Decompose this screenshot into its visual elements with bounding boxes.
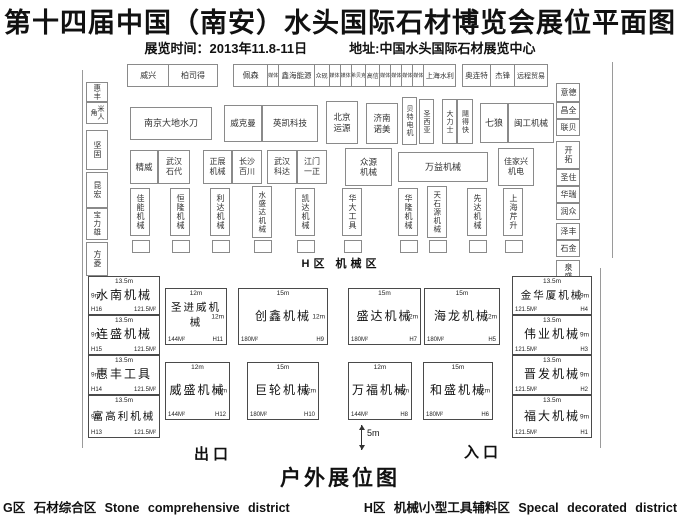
booth-area: 121.5M² bbox=[515, 347, 537, 353]
hall-zone-label: H区 机械区 bbox=[128, 255, 554, 271]
booth-top-dimension: 13.5m bbox=[513, 397, 591, 404]
empty-booth bbox=[297, 240, 315, 253]
booth: 圣西亚 bbox=[419, 99, 434, 144]
booth: 13.5m9m连盛机械H15121.5M² bbox=[88, 315, 160, 355]
booth-area: 144M² bbox=[351, 412, 368, 418]
exit-label: 出口 bbox=[194, 443, 232, 464]
booth: 华大工具 bbox=[342, 188, 362, 236]
booth-name: 金华厦机械 bbox=[513, 287, 591, 302]
booth-code: H6 bbox=[481, 412, 489, 418]
booth-name: 和盛机械 bbox=[424, 381, 492, 398]
booth-code: H1 bbox=[580, 430, 588, 436]
booth-top-dimension: 15m bbox=[239, 290, 327, 297]
booth: 13.5m9m金华厦机械121.5M²H4 bbox=[512, 276, 592, 315]
booth-top-dimension: 13.5m bbox=[513, 357, 591, 364]
booth-code: H14 bbox=[91, 387, 102, 393]
top-row: 威兴柏司得佩森媒体鑫海能源众砚媒体媒体希贝克高信媒体媒体媒体媒体上海水利奥连特杰… bbox=[128, 64, 548, 87]
booth: 利达机械 bbox=[210, 188, 230, 236]
booth-code: H11 bbox=[212, 337, 223, 343]
floor-plan-page: 第十四届中国（南安）水头国际石材博览会展位平面图 展览时间：2013年11.8-… bbox=[0, 0, 680, 517]
booth: 威兴 bbox=[127, 64, 169, 87]
booth-code: H4 bbox=[580, 307, 588, 313]
legend-g-zone: G区 石材综合区 Stone comprehensive district bbox=[3, 497, 290, 516]
booth: 高信 bbox=[365, 64, 380, 87]
booth-top-dimension: 15m bbox=[424, 364, 492, 371]
booth-area: 121.5M² bbox=[134, 347, 156, 353]
aisle-width-label: 5m bbox=[367, 428, 380, 438]
booth-name: 晋发机械 bbox=[513, 365, 591, 382]
booth-name: 海龙机械 bbox=[425, 307, 499, 324]
booth-code: H5 bbox=[488, 337, 496, 343]
booth: 瑞华 bbox=[556, 186, 580, 203]
booth: 希贝克 bbox=[351, 64, 367, 87]
booth: 13.5m9m伟业机械121.5M²H3 bbox=[512, 315, 592, 355]
booth-area: 121.5M² bbox=[134, 307, 156, 313]
aisle-width-arrow bbox=[361, 425, 362, 450]
empty-booth bbox=[400, 240, 418, 253]
booth: 住圣 bbox=[556, 169, 580, 186]
booth: 12m12m万福机械144M²H8 bbox=[348, 362, 412, 420]
booth: 杰锋 bbox=[490, 64, 515, 87]
empty-booth bbox=[212, 240, 230, 253]
booth-code: H7 bbox=[409, 337, 417, 343]
booth-area: 180M² bbox=[426, 412, 443, 418]
legend: G区 石材综合区 Stone comprehensive district H区… bbox=[3, 497, 677, 516]
booth: 贝特电机 bbox=[402, 97, 417, 145]
booth: 15m12m和盛机械180M²H6 bbox=[423, 362, 493, 420]
booth-area: 180M² bbox=[351, 337, 368, 343]
booth: 昆宏 bbox=[86, 172, 108, 208]
booth-name: 伟业机械 bbox=[513, 325, 591, 342]
booth: 方菱 bbox=[86, 242, 108, 276]
booth-top-dimension: 12m bbox=[166, 364, 229, 371]
booth: 12m12m威盛机械144M²H12 bbox=[165, 362, 230, 420]
booth-top-dimension: 12m bbox=[349, 364, 411, 371]
booth-area: 121.5M² bbox=[515, 387, 537, 393]
booth-name: 万福机械 bbox=[349, 381, 411, 398]
booth-area: 121.5M² bbox=[515, 430, 537, 436]
booth-name: 富高利机械 bbox=[89, 408, 159, 423]
booth: 北京 运源 bbox=[326, 101, 358, 144]
empty-booth bbox=[172, 240, 190, 253]
booth: 开拓 bbox=[556, 141, 580, 169]
empty-booth bbox=[254, 240, 272, 253]
booth-top-dimension: 15m bbox=[248, 364, 318, 371]
booth: 大力士 bbox=[442, 99, 457, 144]
booth: 上海水利 bbox=[423, 64, 456, 87]
booth: 佳家兴 机电 bbox=[498, 148, 534, 186]
booth: 精威 bbox=[130, 150, 158, 184]
booth: 济南 诺美 bbox=[366, 103, 398, 144]
booth: 15m12m巨轮机械180M²H10 bbox=[247, 362, 319, 420]
booth-area: 144M² bbox=[168, 337, 185, 343]
booth-top-dimension: 13.5m bbox=[89, 317, 159, 324]
booth: 15m12m盛达机械180M²H7 bbox=[348, 288, 421, 345]
booth: 15m12m海龙机械180M²H5 bbox=[424, 288, 500, 345]
booth-code: H15 bbox=[91, 347, 102, 353]
booth: 七狼 bbox=[480, 103, 508, 143]
booth-area: 121.5M² bbox=[134, 387, 156, 393]
booth-top-dimension: 13.5m bbox=[513, 317, 591, 324]
booth: 柏司得 bbox=[168, 64, 218, 87]
booth: 惠丰 bbox=[86, 82, 108, 102]
booth: 江门 一正 bbox=[297, 150, 327, 184]
booth-area: 121.5M² bbox=[134, 430, 156, 436]
booth: 13.5m9m水南机械H16121.5M² bbox=[88, 276, 160, 315]
booth: 闽工机械 bbox=[508, 103, 554, 143]
booth: 13.5m9m惠丰工具H14121.5M² bbox=[88, 355, 160, 395]
booth: 威克曼 bbox=[224, 105, 262, 142]
booth: 12m12m圣进威机械144M²H11 bbox=[165, 288, 227, 345]
right-wall-line-upper bbox=[612, 62, 613, 258]
entrance-label: 入口 bbox=[464, 441, 502, 462]
booth: 天石源机械 bbox=[427, 186, 447, 238]
booth: 远程贸易 bbox=[514, 64, 548, 87]
booth: 13.5m9m福大机械121.5M²H1 bbox=[512, 395, 592, 438]
booth: 13.5m9m富高利机械H13121.5M² bbox=[88, 395, 160, 438]
booth: 众砚 bbox=[314, 64, 330, 87]
booth: 飓得快 bbox=[457, 99, 473, 144]
booth: 英凯科技 bbox=[262, 105, 318, 142]
booth-name: 威盛机械 bbox=[166, 381, 229, 398]
empty-booth bbox=[132, 240, 150, 253]
right-wall-line-lower bbox=[600, 268, 601, 448]
booth-name: 巨轮机械 bbox=[248, 381, 318, 398]
booth-code: H12 bbox=[215, 412, 226, 418]
booth: 水盛达机械 bbox=[252, 186, 272, 238]
booth: 华隆机械 bbox=[398, 188, 418, 236]
booth: 正展 机械 bbox=[203, 150, 232, 184]
booth: 坚固 bbox=[86, 130, 108, 170]
booth-top-dimension: 13.5m bbox=[513, 278, 591, 285]
outdoor-plan-title: 户外展位图 bbox=[0, 462, 680, 492]
booth: 丰泽 bbox=[556, 223, 580, 240]
booth: 宝力雄 bbox=[86, 208, 108, 240]
booth-top-dimension: 15m bbox=[349, 290, 420, 297]
empty-booth bbox=[469, 240, 487, 253]
empty-booth bbox=[344, 240, 362, 253]
booth-code: H13 bbox=[91, 430, 102, 436]
booth-area: 180M² bbox=[241, 337, 258, 343]
booth: 长沙 百川 bbox=[232, 150, 262, 184]
floor-plan: 威兴柏司得佩森媒体鑫海能源众砚媒体媒体希贝克高信媒体媒体媒体媒体上海水利奥连特杰… bbox=[0, 0, 680, 517]
booth-name: 圣进威机械 bbox=[166, 299, 226, 329]
booth-code: H10 bbox=[304, 412, 315, 418]
booth-code: H3 bbox=[580, 347, 588, 353]
booth: 上海芹升 bbox=[503, 188, 523, 236]
booth-area: 144M² bbox=[168, 412, 185, 418]
booth: 众润 bbox=[556, 203, 580, 220]
booth-code: H16 bbox=[91, 307, 102, 313]
booth: 恒隆机械 bbox=[170, 188, 190, 236]
booth: 先达机械 bbox=[467, 188, 487, 236]
booth-code: H8 bbox=[400, 412, 408, 418]
booth: 奥连特 bbox=[462, 64, 491, 87]
booth: 贝联 bbox=[556, 119, 580, 136]
left-wall-line bbox=[82, 70, 83, 448]
booth-name: 连盛机械 bbox=[89, 325, 159, 342]
booth-top-dimension: 12m bbox=[166, 290, 226, 297]
booth: 全昌 bbox=[556, 102, 580, 119]
booth: 金石 bbox=[556, 240, 580, 257]
booth-code: H9 bbox=[316, 337, 324, 343]
booth: 南京大地水刀 bbox=[130, 107, 212, 140]
booth: 凯达机械 bbox=[295, 188, 315, 236]
booth: 武汉 科达 bbox=[267, 150, 297, 184]
booth-name: 水南机械 bbox=[89, 286, 159, 303]
booth: 米人角 bbox=[86, 102, 108, 124]
booth: 15m12m创鑫机械180M²H9 bbox=[238, 288, 328, 345]
booth: 众源 机械 bbox=[345, 148, 392, 186]
booth-area: 180M² bbox=[250, 412, 267, 418]
booth-name: 创鑫机械 bbox=[239, 307, 327, 324]
booth-name: 惠丰工具 bbox=[89, 365, 159, 382]
empty-booth bbox=[505, 240, 523, 253]
booth: 德意 bbox=[556, 83, 580, 102]
booth: 鑫海能源 bbox=[278, 64, 315, 87]
booth-top-dimension: 13.5m bbox=[89, 397, 159, 404]
booth: 万益机械 bbox=[398, 152, 488, 182]
legend-h-zone: H区 机械\小型工具辅料区 Specal decorated district bbox=[364, 497, 677, 516]
booth: 佩森 bbox=[233, 64, 268, 87]
aisle-gap bbox=[218, 64, 234, 87]
booth-top-dimension: 15m bbox=[425, 290, 499, 297]
booth: 武汉 石代 bbox=[158, 150, 190, 184]
booth-top-dimension: 13.5m bbox=[89, 278, 159, 285]
booth: 13.5m9m晋发机械121.5M²H2 bbox=[512, 355, 592, 395]
booth-code: H2 bbox=[580, 387, 588, 393]
booth-area: 121.5M² bbox=[515, 307, 537, 313]
booth-name: 福大机械 bbox=[513, 407, 591, 424]
booth-top-dimension: 13.5m bbox=[89, 357, 159, 364]
booth-name: 盛达机械 bbox=[349, 307, 420, 324]
booth-area: 180M² bbox=[427, 337, 444, 343]
empty-booth bbox=[429, 240, 447, 253]
booth: 佳能机械 bbox=[130, 188, 150, 236]
